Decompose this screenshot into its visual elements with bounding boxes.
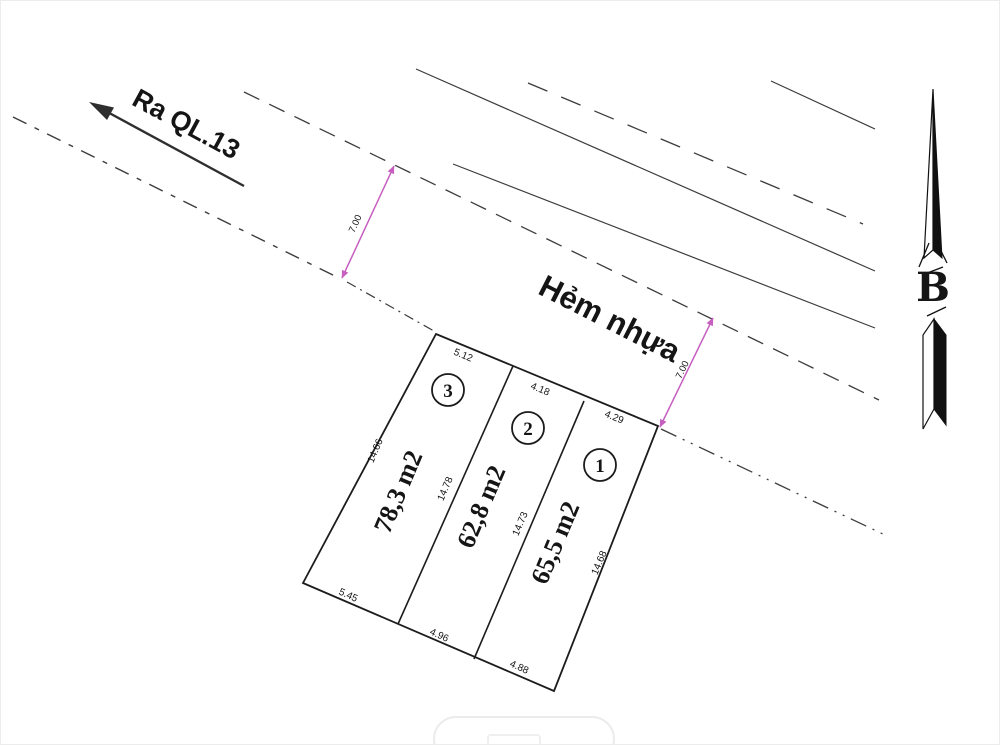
dimension-arrow-left: 7.00	[342, 166, 394, 278]
plots-group: 3 78,3 m2 2 62,8 m2 1 65,5 m2 5.12 4.18 …	[303, 334, 658, 691]
plot-2-area: 62,8 m2	[451, 461, 512, 552]
edge-label-divider-3-2: 14.78	[436, 475, 456, 503]
parallel-road-line-dashed	[528, 83, 863, 224]
north-arrow-spike-right	[933, 89, 942, 258]
plot-3-number: 3	[443, 381, 453, 402]
highway-arrow-head	[89, 102, 114, 120]
north-arrow-tail-left	[923, 319, 934, 429]
alley-south-edge-dashdot-right	[661, 429, 885, 535]
highway-arrow: Ra QL.13	[89, 83, 245, 186]
edge-label-front-plot3: 5.12	[452, 347, 475, 365]
north-arrow-tail-right	[934, 319, 946, 425]
alley-label: Hẻm nhựa	[533, 268, 686, 369]
dimension-label-right: 7.00	[674, 359, 692, 380]
cadastral-sketch-page: Ra QL.13 Hẻm nhựa 7.00 7.00 3 78,3 m2 2 …	[0, 0, 1000, 745]
parallel-road-line-1	[416, 69, 875, 271]
edge-label-back-plot1: 4.88	[508, 659, 531, 677]
alley-south-edge-dashdot-left	[347, 282, 434, 331]
edge-label-right: 14.68	[590, 549, 610, 577]
plot-1-area: 65,5 m2	[525, 497, 586, 588]
watermark-outer	[434, 717, 614, 745]
alley-north-edge-dashed	[244, 92, 879, 400]
edge-label-front-plot2: 4.18	[529, 381, 552, 399]
watermark	[434, 717, 614, 745]
parallel-road-line-corner	[771, 81, 875, 129]
watermark-inner	[488, 735, 540, 745]
alley-south-edge-dashed	[13, 117, 339, 278]
plot-1-number: 1	[595, 456, 605, 477]
highway-arrow-label: Ra QL.13	[128, 83, 245, 165]
land-plot-diagram: Ra QL.13 Hẻm nhựa 7.00 7.00 3 78,3 m2 2 …	[1, 1, 1000, 745]
north-label: B	[916, 264, 950, 311]
north-arrow-spike-left	[924, 89, 933, 258]
dimension-label-left: 7.00	[347, 213, 365, 234]
north-arrow: B	[916, 89, 950, 429]
parallel-road-line-2	[453, 164, 875, 328]
plot-2-number: 2	[523, 419, 533, 440]
edge-label-left: 14.66	[366, 437, 386, 465]
